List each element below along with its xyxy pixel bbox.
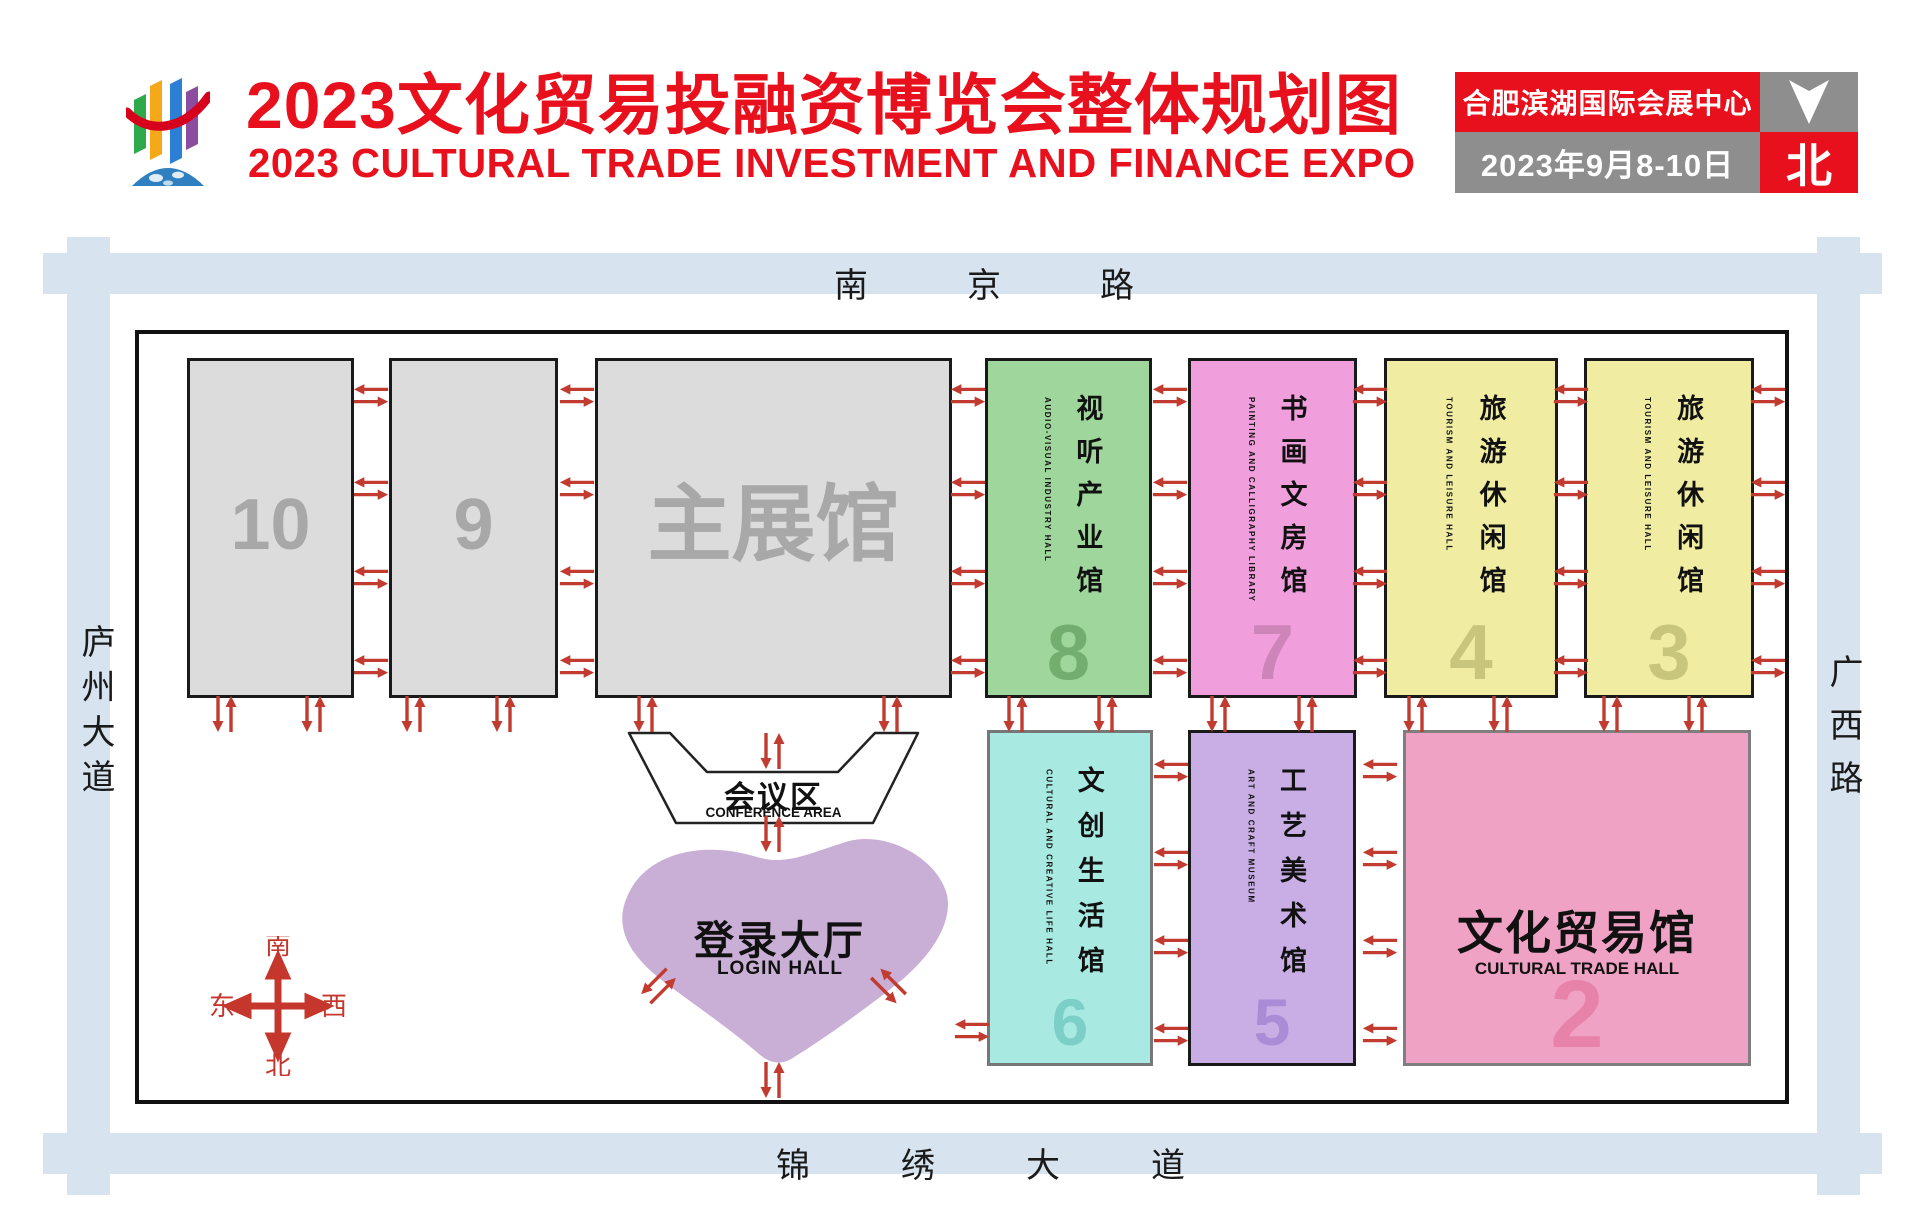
hall-3: TOURISM AND LEISURE HALL旅游休闲馆3	[1584, 358, 1754, 698]
hall-7-name-en: PAINTING AND CALLIGRAPHY LIBRARY	[1247, 397, 1256, 602]
hall-7-number: 7	[1191, 613, 1354, 691]
flow-arrow	[352, 653, 390, 680]
flow-arrow	[759, 1060, 786, 1100]
event-dates: 2023年9月8-10日	[1455, 132, 1760, 193]
flow-arrow	[1151, 653, 1189, 680]
hall-8-number: 8	[988, 613, 1149, 691]
hall-3-name-en: TOURISM AND LEISURE HALL	[1643, 397, 1652, 552]
hall-6-name-en: CULTURAL AND CREATIVE LIFE HALL	[1045, 769, 1054, 966]
venue-name: 合肥滨湖国际会展中心	[1455, 72, 1760, 132]
flow-arrow	[1152, 757, 1190, 784]
compass-east-label: 东	[209, 991, 235, 1021]
hall-2-number: 2	[1406, 967, 1748, 1063]
hall-6-number: 6	[990, 989, 1150, 1055]
flow-arrow	[1152, 845, 1190, 872]
compass-south-label: 南	[265, 936, 291, 960]
compass: 南 北 东 西	[208, 936, 348, 1076]
flow-arrow	[759, 814, 786, 854]
main-hall-label: 主展馆	[598, 483, 949, 567]
hall-8-name-en: AUDIO-VISUAL INDUSTRY HALL	[1043, 397, 1052, 562]
flow-arrow	[558, 564, 596, 591]
hall-6: CULTURAL AND CREATIVE LIFE HALL文创生活馆6	[987, 730, 1153, 1066]
flow-arrow	[1552, 653, 1590, 680]
flow-arrow	[1552, 475, 1590, 502]
flow-arrow	[1152, 1021, 1190, 1048]
flow-arrow	[1402, 694, 1429, 734]
hall-8: AUDIO-VISUAL INDUSTRY HALL视听产业馆8	[985, 358, 1152, 698]
compass-north-label: 北	[265, 1051, 291, 1076]
hall-6-name-cn: 文创生活馆	[1070, 766, 1109, 991]
flow-arrow	[1351, 475, 1389, 502]
hall-2: 文化贸易馆CULTURAL TRADE HALL2	[1403, 730, 1751, 1066]
flow-arrow	[352, 382, 390, 409]
road-luzhou-label: 庐州大道	[71, 624, 120, 804]
hall-4: TOURISM AND LEISURE HALL旅游休闲馆4	[1384, 358, 1558, 698]
flow-arrow	[1597, 694, 1624, 734]
flow-arrow	[953, 1017, 991, 1044]
flow-arrow	[1749, 475, 1787, 502]
hall-4-number: 4	[1387, 613, 1555, 691]
flow-arrow	[1487, 694, 1514, 734]
flow-arrow	[1682, 694, 1709, 734]
flow-arrow	[1151, 382, 1189, 409]
hall-9-label: 9	[392, 489, 555, 561]
flow-arrow	[1361, 1021, 1399, 1048]
flow-arrow	[1152, 933, 1190, 960]
flow-arrow	[877, 694, 904, 734]
flow-arrow	[1351, 564, 1389, 591]
hall-5-name-cn: 工艺美术馆	[1272, 766, 1311, 991]
flow-arrow	[1151, 564, 1189, 591]
hall-9: 9	[389, 358, 558, 698]
hall-10: 10	[187, 358, 354, 698]
flow-arrow	[949, 475, 987, 502]
hall-7: PAINTING AND CALLIGRAPHY LIBRARY书画文房馆7	[1188, 358, 1357, 698]
flow-arrow	[1205, 694, 1232, 734]
flow-arrow	[1351, 382, 1389, 409]
road-nanjing-label: 南京路	[834, 258, 1233, 307]
flow-arrow	[1361, 845, 1399, 872]
flow-arrow	[1552, 564, 1590, 591]
flow-arrow	[949, 653, 987, 680]
flow-arrow	[558, 653, 596, 680]
north-arrow-icon	[1760, 72, 1858, 132]
hall-4-name-cn: 旅游休闲馆	[1472, 394, 1511, 609]
expo-logo	[126, 72, 210, 188]
flow-arrow	[1151, 475, 1189, 502]
road-guangxi-label: 广西路	[1819, 654, 1868, 813]
flow-arrow	[352, 564, 390, 591]
flow-arrow	[1351, 653, 1389, 680]
flow-arrow	[558, 382, 596, 409]
main-hall: 主展馆	[595, 358, 952, 698]
flow-arrow	[211, 694, 238, 734]
hall-7-name-cn: 书画文房馆	[1273, 394, 1312, 609]
road-jinxiu-label: 锦绣大道	[776, 1138, 1276, 1187]
flow-arrow	[1361, 933, 1399, 960]
hall-3-number: 3	[1587, 613, 1751, 691]
hall-10-label: 10	[190, 489, 351, 561]
hall-5-number: 5	[1191, 989, 1353, 1055]
flow-arrow	[558, 475, 596, 502]
page-title: 2023文化贸易投融资博览会整体规划图	[246, 52, 1402, 148]
flow-arrow	[1749, 653, 1787, 680]
logo-bar-orange	[150, 80, 162, 160]
expo-floorplan: 2023文化贸易投融资博览会整体规划图 2023 CULTURAL TRADE …	[0, 0, 1920, 1217]
hall-5: ART AND CRAFT MUSEUM工艺美术馆5	[1188, 730, 1356, 1066]
hall-8-name-cn: 视听产业馆	[1068, 394, 1107, 609]
page-subtitle: 2023 CULTURAL TRADE INVESTMENT AND FINAN…	[248, 140, 1416, 187]
hall-2-name-cn: 文化贸易馆	[1406, 897, 1748, 963]
flow-arrow	[1002, 694, 1029, 734]
flow-arrow	[300, 694, 327, 734]
flow-arrow	[1749, 564, 1787, 591]
flow-arrow	[1361, 757, 1399, 784]
flow-arrow	[352, 475, 390, 502]
flow-arrow	[1552, 382, 1590, 409]
hall-5-name-en: ART AND CRAFT MUSEUM	[1246, 769, 1255, 904]
flow-arrow	[1749, 382, 1787, 409]
flow-arrow	[1092, 694, 1119, 734]
flow-arrow	[759, 731, 786, 771]
flow-arrow	[949, 382, 987, 409]
flow-arrow	[632, 694, 659, 734]
flow-arrow	[400, 694, 427, 734]
hall-4-name-en: TOURISM AND LEISURE HALL	[1445, 397, 1454, 552]
north-label: 北	[1760, 132, 1858, 193]
compass-west-label: 西	[321, 991, 347, 1021]
venue-info-box: 合肥滨湖国际会展中心 2023年9月8-10日 北	[1455, 72, 1858, 193]
hall-3-name-cn: 旅游休闲馆	[1669, 394, 1708, 609]
flow-arrow	[949, 564, 987, 591]
flow-arrow	[1292, 694, 1319, 734]
flow-arrow	[490, 694, 517, 734]
